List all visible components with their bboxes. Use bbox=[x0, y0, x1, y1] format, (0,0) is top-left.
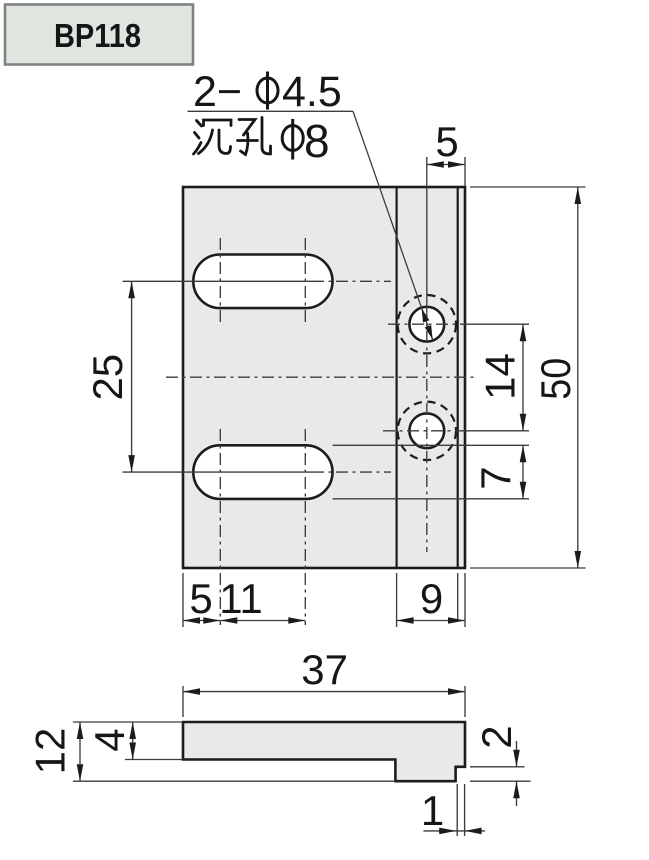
svg-text:4.5: 4.5 bbox=[282, 68, 342, 116]
svg-text:25: 25 bbox=[84, 354, 131, 401]
svg-text:11: 11 bbox=[219, 575, 263, 622]
svg-text:2: 2 bbox=[473, 725, 520, 748]
svg-text:50: 50 bbox=[532, 358, 579, 400]
svg-text:5: 5 bbox=[189, 575, 212, 622]
svg-text:2−: 2− bbox=[193, 68, 242, 116]
svg-text:12: 12 bbox=[27, 728, 74, 775]
svg-text:5: 5 bbox=[435, 118, 458, 165]
svg-text:BP118: BP118 bbox=[54, 18, 141, 55]
svg-text:4: 4 bbox=[86, 728, 133, 751]
svg-text:1: 1 bbox=[421, 787, 444, 834]
svg-text:37: 37 bbox=[301, 646, 348, 693]
svg-text:8: 8 bbox=[304, 115, 330, 167]
svg-text:9: 9 bbox=[420, 575, 443, 622]
svg-text:7: 7 bbox=[472, 466, 519, 489]
svg-text:14: 14 bbox=[477, 353, 524, 400]
